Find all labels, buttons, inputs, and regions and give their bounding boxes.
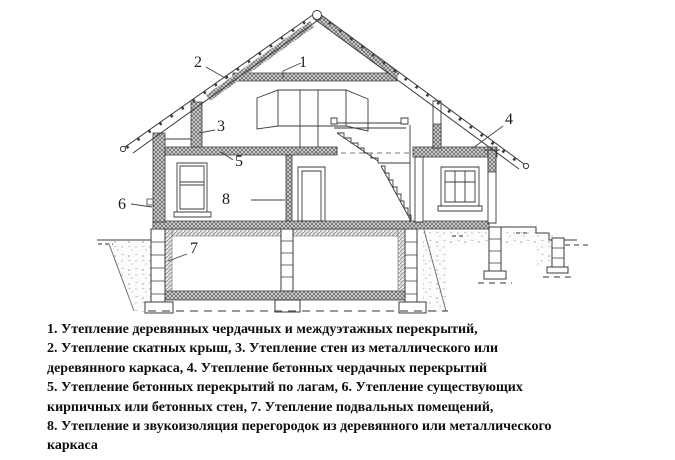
window-annex <box>438 167 482 211</box>
ground-floor-slab <box>153 221 489 229</box>
footing-middle <box>275 300 300 312</box>
legend-line-1: 1. Утепление деревянных чердачных и межд… <box>47 320 637 339</box>
callout-4: 4 <box>505 111 513 128</box>
upper-right-post <box>433 101 441 148</box>
legend-line-2: 2. Утепление скатных крыш, 3. Утепление … <box>47 339 637 358</box>
basement-lining-wall-right <box>398 229 405 291</box>
stair-side-wall <box>415 157 423 222</box>
newel-cap-left <box>331 118 337 124</box>
window-ground-left <box>174 163 211 217</box>
wall-ledge-left <box>147 199 153 205</box>
annex-right-wall <box>484 150 500 223</box>
foundation-pier-annex <box>489 227 501 271</box>
partition-wall <box>286 155 292 221</box>
foundation-pier-far-right <box>552 238 564 267</box>
basement-floor-slab <box>163 291 409 300</box>
legend-line-6: 8. Утепление и звукоизоляция перегородок… <box>47 417 637 436</box>
basement-lining-ceiling-left <box>165 229 282 236</box>
legend-line-7: каркаса <box>47 436 637 455</box>
callout-6: 6 <box>118 196 126 213</box>
ridge-cap <box>313 11 322 20</box>
legend-line-5: кирпичных или бетонных стен, 7. Утеплени… <box>47 398 637 417</box>
basement-wall-left <box>151 229 165 302</box>
screenshot-root: 1 2 3 4 5 6 7 8 1. Утепление деревянных … <box>0 0 675 460</box>
basement-wall-right <box>405 229 417 302</box>
callout-7: 7 <box>190 240 198 257</box>
gutter-right <box>523 163 528 168</box>
attic-floor-slab <box>233 73 397 81</box>
footing-far-right <box>547 267 568 273</box>
leader-2 <box>206 67 227 79</box>
interfloor-slab <box>165 147 337 155</box>
roof-inner-left <box>133 18 321 153</box>
footing-annex <box>484 271 506 279</box>
roof-outer-right <box>317 12 524 164</box>
soil-under-annex <box>423 229 536 246</box>
house-section-diagram: 1 2 3 4 5 6 7 8 <box>0 0 675 318</box>
basement-pier-middle <box>281 229 293 291</box>
gutter-left <box>120 146 125 151</box>
callout-1: 1 <box>299 54 307 71</box>
callout-5: 5 <box>235 153 243 170</box>
newel-cap-right <box>401 118 408 124</box>
legend-line-3: деревянного каркаса, 4. Утепление бетонн… <box>47 359 637 378</box>
callout-2: 2 <box>194 54 202 71</box>
callout-8: 8 <box>222 191 230 208</box>
callout-3: 3 <box>217 118 225 135</box>
roof-insulation-right <box>318 15 400 79</box>
annex-ceiling-slab <box>413 147 497 157</box>
legend-line-4: 5. Утепление бетонных перекрытий по лага… <box>47 378 637 397</box>
window-sill <box>438 206 482 211</box>
basement-lining-ceiling-right <box>293 229 405 236</box>
knee-wall <box>191 102 202 147</box>
window-sill <box>174 212 211 217</box>
door-ground-floor <box>298 167 325 221</box>
legend: 1. Утепление деревянных чердачных и межд… <box>47 320 637 456</box>
